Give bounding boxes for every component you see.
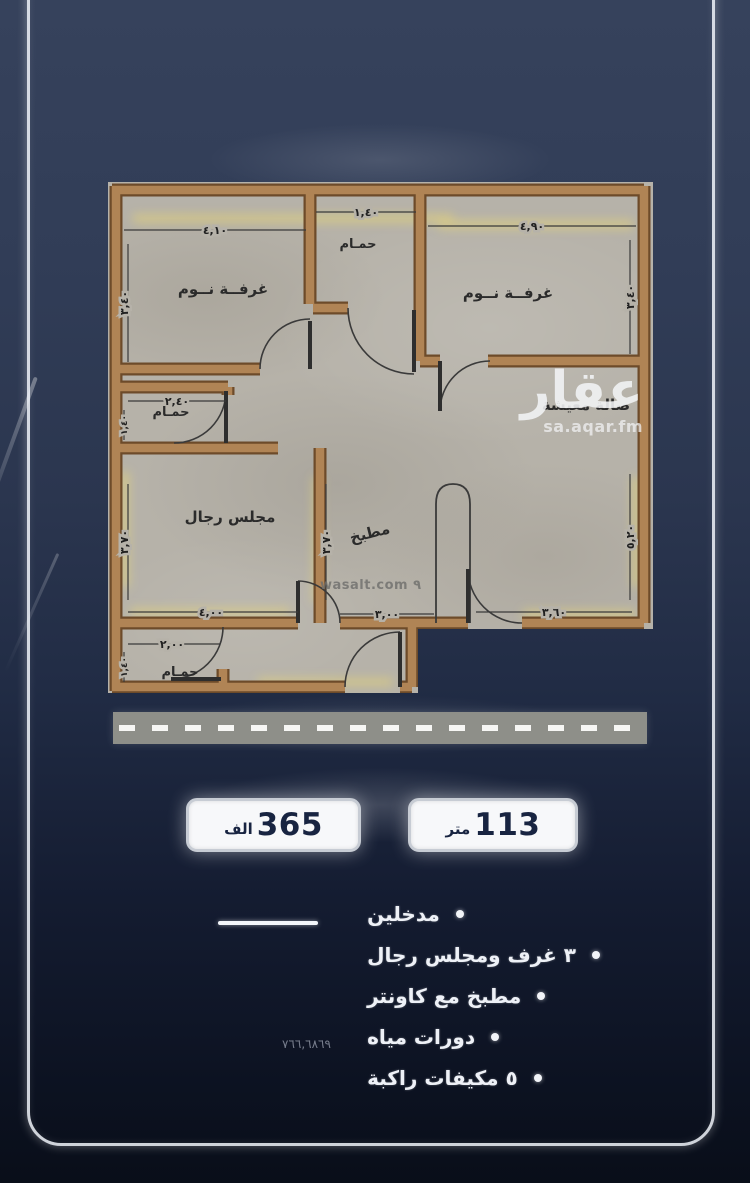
room-label-majlis: مجلس رجال: [185, 508, 276, 526]
feature-text: ٥ مكيفات راكبة: [367, 1066, 518, 1090]
area-value: 113: [474, 807, 540, 843]
aqar-logo-text: عقار: [521, 365, 643, 417]
room-label-kitchen: مطبخ: [348, 519, 392, 546]
features-list: مدخلين ٣ غرف ومجلس رجال مطبخ مع كاونتر د…: [367, 902, 600, 1090]
feature-text: مطبخ مع كاونتر: [367, 984, 521, 1008]
area-badge: 113 متر: [408, 798, 578, 852]
room-label-bath-mid: حمـام: [153, 405, 190, 420]
bullet-dot-icon: [456, 910, 464, 918]
feature-item: دورات مياه: [367, 1025, 499, 1049]
dim-label: ٤,٩٠: [520, 220, 544, 233]
floor-plan-svg: ٤,١٠ ١,٤٠ ٤,٩٠ ٣,٤٠ ٣,٤٠ ٢,٤٠ ١,٤٠ ٣,٧٠ …: [108, 182, 653, 702]
dim-label: ٣,٧٠: [320, 530, 333, 554]
dim-label: ٢,٠٠: [160, 638, 184, 651]
bullet-dot-icon: [537, 992, 545, 1000]
separator-dash: [218, 921, 318, 925]
bullet-dot-icon: [491, 1033, 499, 1041]
street-divider: [113, 712, 647, 744]
aqar-watermark: عقار sa.aqar.fm: [521, 365, 643, 435]
feature-text: دورات مياه: [367, 1025, 475, 1049]
dim-label: ٣,٤٠: [624, 285, 637, 309]
bullet-dot-icon: [592, 951, 600, 959]
dim-label: ١,٤٠: [354, 206, 378, 219]
feature-item: ٣ غرف ومجلس رجال: [367, 943, 600, 967]
dim-label: ٣,٦٠: [542, 606, 566, 619]
dim-label: ٣,٧٠: [118, 530, 131, 554]
room-label-bedroom-right: غرفــة نــوم: [463, 284, 553, 302]
feature-text: مدخلين: [367, 902, 440, 926]
room-label-bath-bottom: حمـام: [162, 665, 199, 680]
dim-label: ١,٤٠: [120, 657, 130, 677]
wasalt-watermark: wasalt.com ٩: [320, 578, 421, 593]
light-streak: [0, 377, 38, 543]
feature-item: مدخلين: [367, 902, 464, 926]
bullet-dot-icon: [534, 1074, 542, 1082]
feature-item: مطبخ مع كاونتر: [367, 984, 545, 1008]
room-label-bedroom-left: غرفــة نــوم: [178, 280, 268, 298]
dim-label: ٥,٢٠: [624, 525, 637, 549]
aqar-url-text: sa.aqar.fm: [521, 419, 643, 435]
room-label-bath-top: حمـام: [340, 237, 377, 252]
dim-label: ٤,٠٠: [199, 606, 223, 619]
price-badge: 365 الف: [186, 798, 361, 852]
floor-plan: ٤,١٠ ١,٤٠ ٤,٩٠ ٣,٤٠ ٣,٤٠ ٢,٤٠ ١,٤٠ ٣,٧٠ …: [108, 182, 653, 702]
dim-label: ٣,٠٠: [375, 608, 399, 621]
area-unit: متر: [446, 820, 471, 838]
feature-text: ٣ غرف ومجلس رجال: [367, 943, 576, 967]
price-unit: الف: [224, 820, 253, 838]
light-streak: [4, 553, 60, 673]
price-value: 365: [257, 807, 323, 843]
kitchen-counter: [436, 484, 470, 623]
listing-image: { "watermarks": { "brand": "عقار", "bran…: [0, 0, 750, 1183]
reference-number: ٧٦٦,٦٨٦٩: [282, 1037, 331, 1051]
dim-label: ١,٤٠: [120, 415, 130, 435]
street-center-dashes: [119, 725, 641, 731]
dim-label: ٤,١٠: [203, 224, 227, 237]
feature-item: ٥ مكيفات راكبة: [367, 1066, 542, 1090]
dim-label: ٣,٤٠: [118, 291, 131, 315]
